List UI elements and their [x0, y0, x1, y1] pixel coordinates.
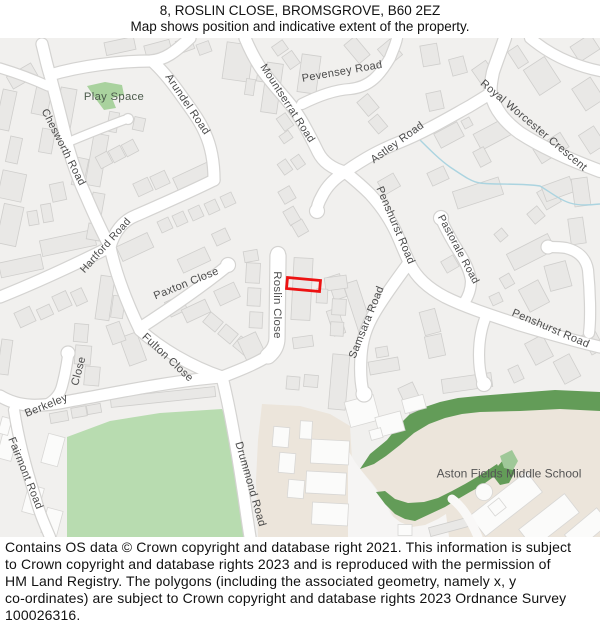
svg-text:Play Space: Play Space [84, 91, 144, 103]
svg-text:Roslin Close: Roslin Close [271, 271, 283, 339]
svg-text:Aston Fields Middle School: Aston Fields Middle School [437, 466, 582, 480]
